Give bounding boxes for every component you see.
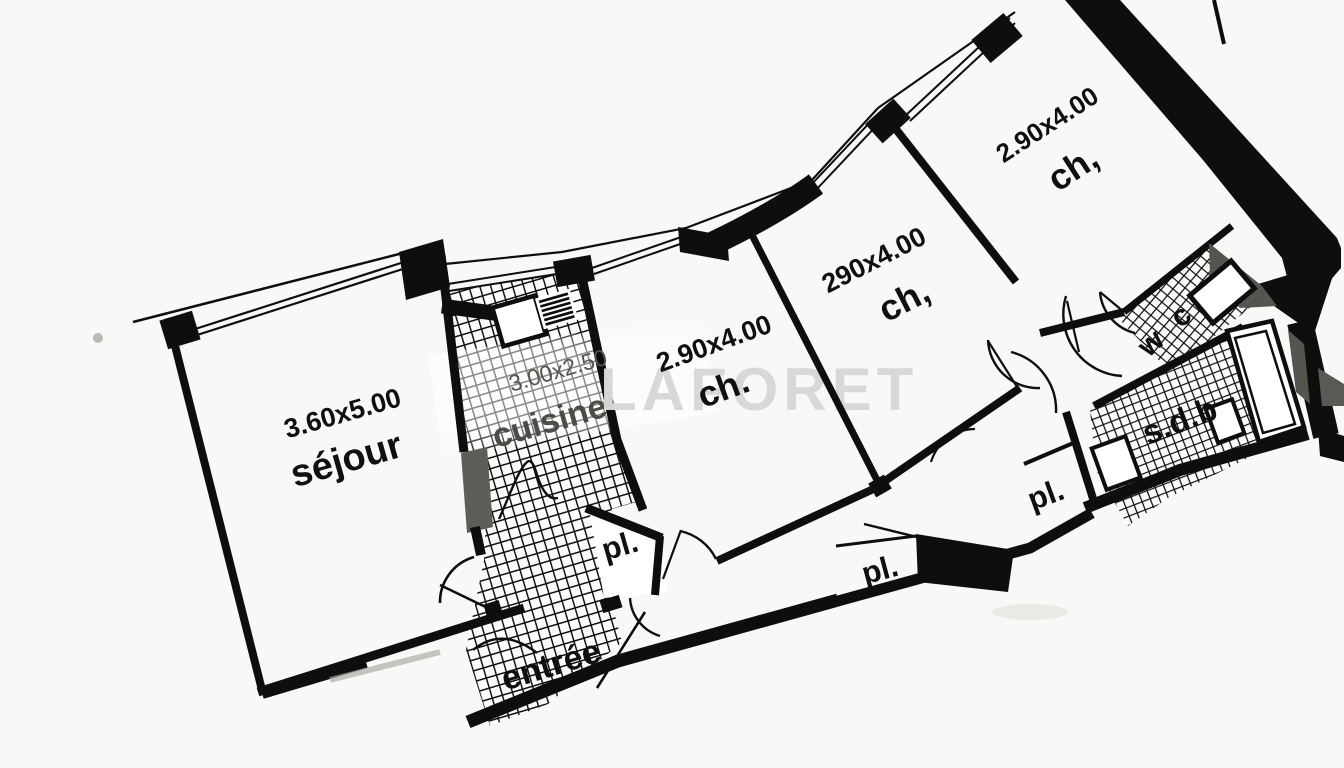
svg-text:LAFORET: LAFORET xyxy=(600,356,918,423)
